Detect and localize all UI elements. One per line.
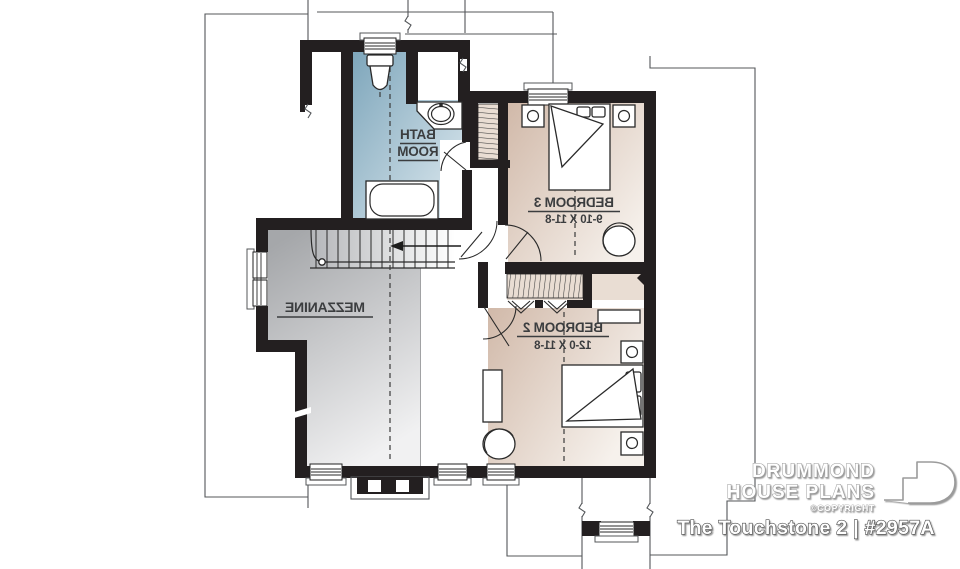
wall (478, 262, 488, 308)
break-symbol (305, 104, 312, 118)
floor-plan-page: BATH ROOM BEDROOM 3 9-10 X 11-8 MEZZANIN… (0, 0, 960, 569)
bathtub (366, 181, 438, 219)
svg-text:BEDROOM 3: BEDROOM 3 (533, 195, 614, 210)
wall (256, 218, 268, 252)
railing-post (319, 259, 325, 265)
closet-rod-hatch (478, 104, 500, 160)
svg-text:12-0 X 11-8: 12-0 X 11-8 (534, 340, 592, 352)
wall (300, 40, 312, 112)
nightstand (613, 105, 635, 127)
wall (644, 91, 656, 478)
window (483, 464, 519, 485)
bedroom-2-dimensions: 12-0 X 11-8 (534, 340, 592, 352)
window (524, 83, 572, 105)
floor-plan-image: BATH ROOM BEDROOM 3 9-10 X 11-8 MEZZANIN… (0, 0, 960, 569)
brand-name-line2: HOUSE PLANS (727, 482, 875, 503)
wall (406, 52, 418, 104)
wall (567, 300, 592, 308)
bedroom-3-label: BEDROOM 3 (528, 195, 620, 212)
wall (256, 218, 472, 230)
mezzanine-label: MEZZANINE (277, 299, 373, 317)
bath-room-label-line2: ROOM (397, 144, 438, 161)
svg-text:9-10 X 11-8: 9-10 X 11-8 (545, 214, 603, 226)
wall (341, 52, 353, 230)
svg-text:ROOM: ROOM (397, 144, 438, 159)
nightstand (522, 105, 544, 127)
svg-text:BATH: BATH (400, 127, 436, 142)
roof-right-outline (650, 56, 755, 555)
bedroom-3-dimensions: 9-10 X 11-8 (545, 214, 603, 226)
closet-rod-hatch (507, 274, 583, 298)
door-swing (441, 142, 466, 171)
dresser (483, 370, 502, 422)
pillow (592, 107, 605, 117)
copyright-text: ©COPYRIGHT (810, 503, 875, 513)
bay-window (582, 521, 650, 542)
wall (462, 170, 472, 218)
break-symbol (405, 16, 412, 30)
svg-text:MEZZANINE: MEZZANINE (285, 299, 365, 315)
shelf (598, 310, 640, 323)
armchair (603, 226, 635, 256)
drummond-logo-icon (884, 462, 955, 503)
brand-name-line1: DRUMMOND (752, 461, 875, 482)
svg-text:BEDROOM 2: BEDROOM 2 (523, 320, 603, 335)
stairs (310, 228, 461, 268)
faucet-icon (439, 103, 443, 107)
toilet-tank (367, 55, 393, 66)
wall (295, 466, 656, 478)
bedroom-2-label: BEDROOM 2 (517, 320, 609, 337)
nightstand (621, 341, 643, 363)
wall (295, 340, 307, 466)
window (247, 249, 267, 309)
break-symbol (579, 503, 586, 517)
closet-floor (592, 274, 644, 300)
wall (535, 300, 543, 308)
break-symbol (460, 58, 467, 72)
roof-step-line (507, 478, 582, 556)
plan-title: The Touchstone 2 | #2957A (677, 517, 935, 539)
nightstand (621, 432, 643, 455)
bath-room-label-line1: BATH (400, 127, 436, 144)
wall (470, 103, 478, 163)
window (434, 464, 471, 485)
toilet-bowl (370, 66, 390, 90)
window (360, 33, 400, 54)
chimney (351, 477, 429, 499)
wall (470, 160, 510, 168)
branding: DRUMMOND HOUSE PLANS ©COPYRIGHT The Touc… (677, 461, 955, 539)
break-symbol (647, 503, 654, 517)
wall (505, 262, 656, 274)
window (306, 464, 346, 485)
